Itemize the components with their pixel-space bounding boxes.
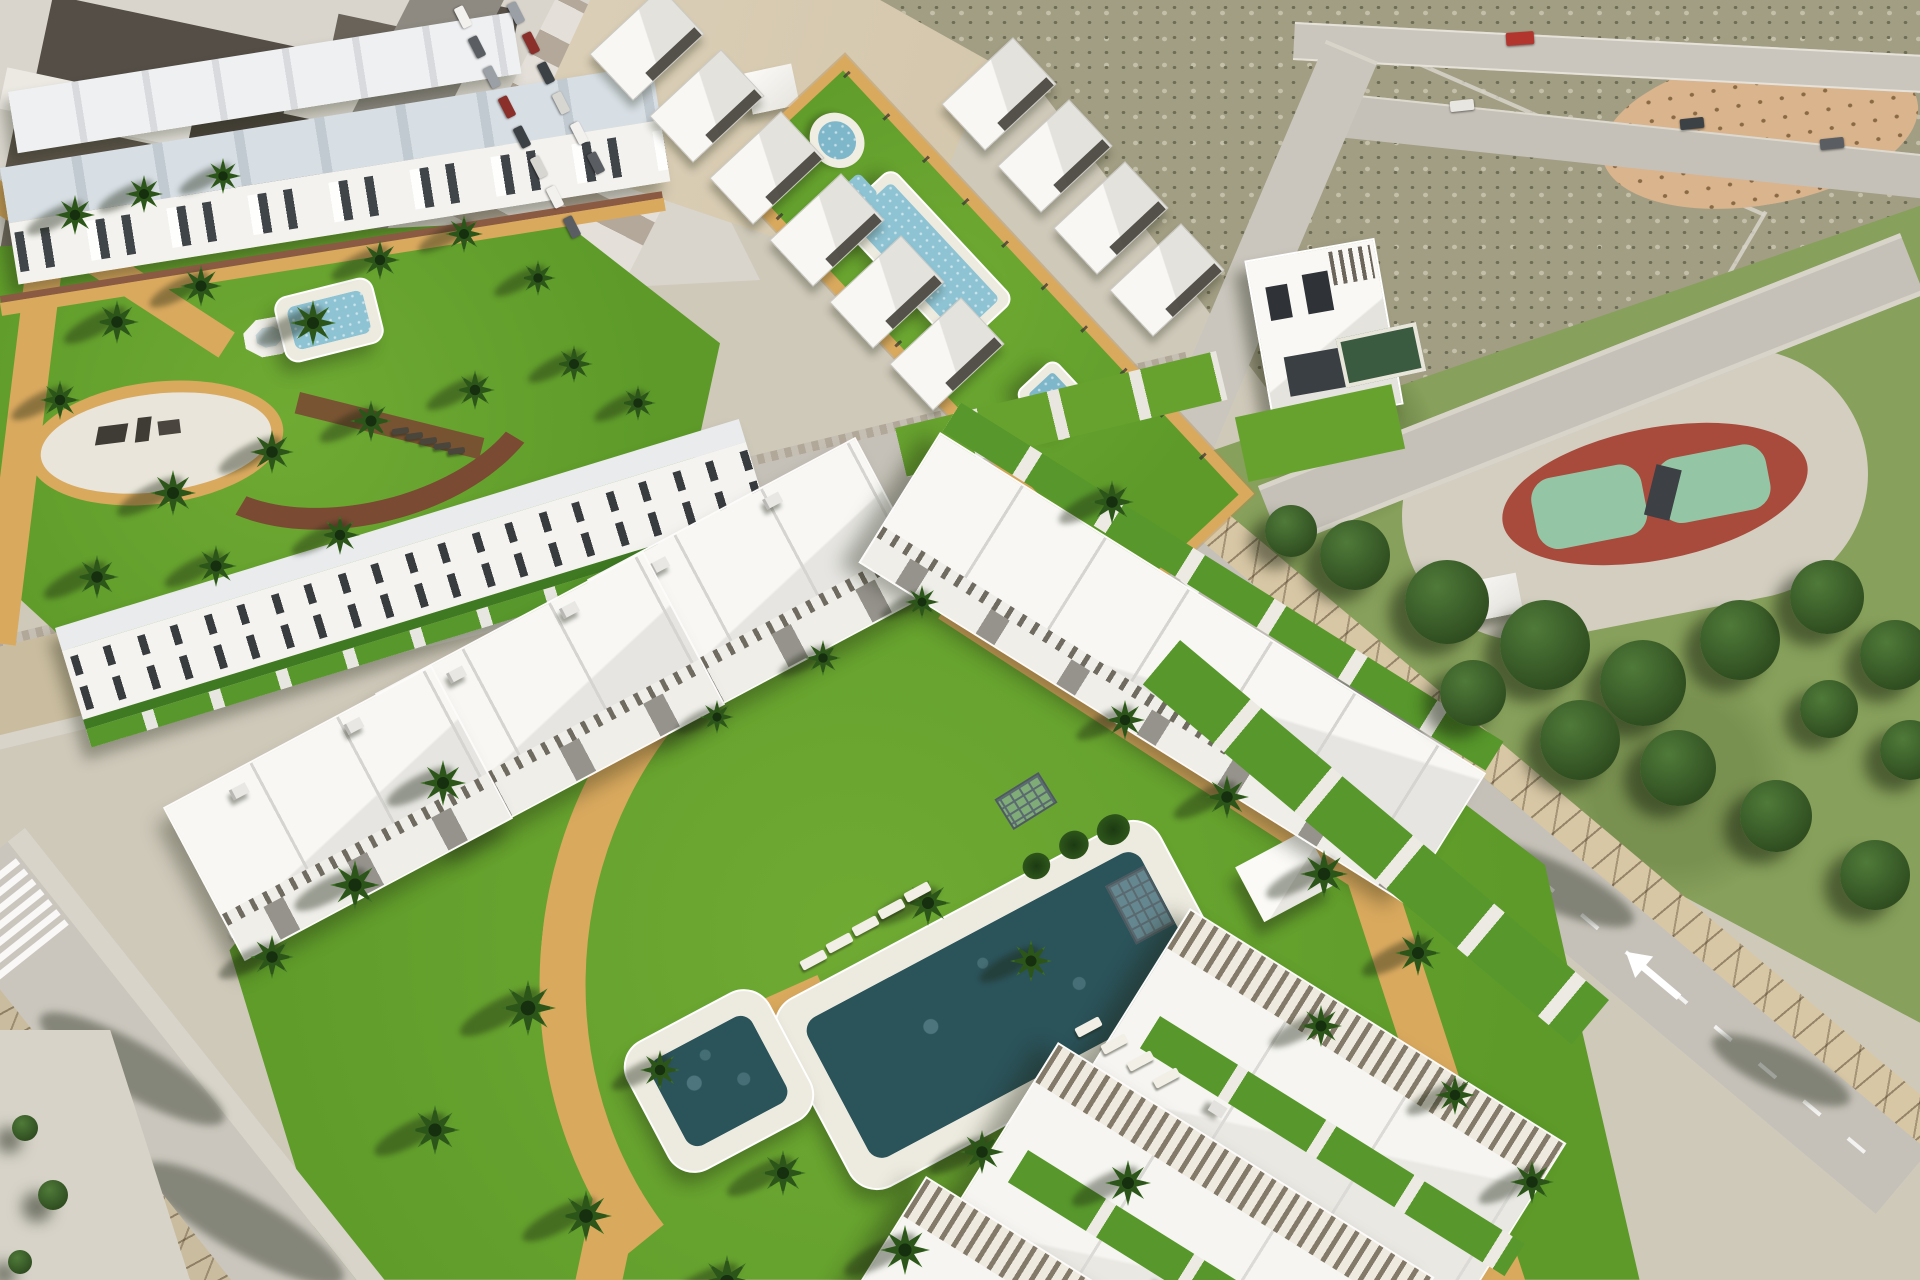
villa-pergola — [1328, 245, 1375, 286]
playground-court — [1527, 461, 1651, 553]
aerial-render-scene — [0, 0, 1920, 1280]
villa-window — [1265, 284, 1293, 321]
small-pool-water — [646, 1011, 793, 1151]
villa-window — [1302, 270, 1335, 314]
logo-mark — [95, 423, 128, 445]
logo-mark — [157, 419, 181, 436]
logo-mark — [135, 416, 152, 442]
pool-water — [286, 289, 372, 351]
road-arrow — [1617, 941, 1689, 1007]
